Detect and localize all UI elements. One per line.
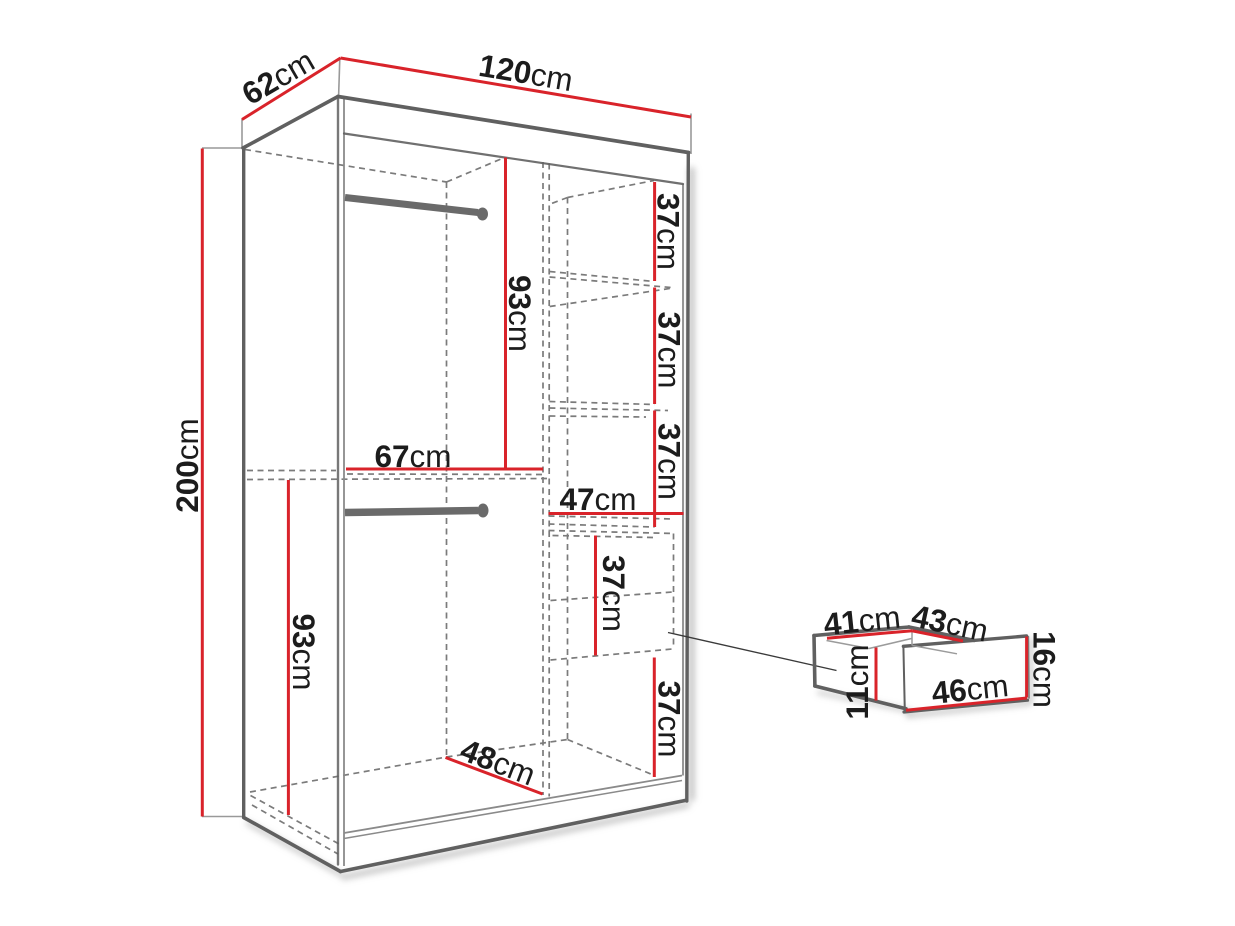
svg-text:37cm: 37cm bbox=[596, 555, 632, 632]
svg-text:200cm: 200cm bbox=[169, 418, 205, 513]
svg-text:47cm: 47cm bbox=[559, 481, 636, 517]
svg-text:37cm: 37cm bbox=[652, 423, 688, 500]
svg-text:16cm: 16cm bbox=[1027, 631, 1063, 708]
svg-text:37cm: 37cm bbox=[652, 311, 688, 388]
svg-text:93cm: 93cm bbox=[286, 613, 322, 690]
svg-text:93cm: 93cm bbox=[502, 275, 538, 352]
svg-text:11cm: 11cm bbox=[839, 644, 875, 719]
svg-text:37cm: 37cm bbox=[652, 680, 688, 757]
svg-text:37cm: 37cm bbox=[651, 193, 687, 270]
svg-text:67cm: 67cm bbox=[374, 438, 451, 474]
